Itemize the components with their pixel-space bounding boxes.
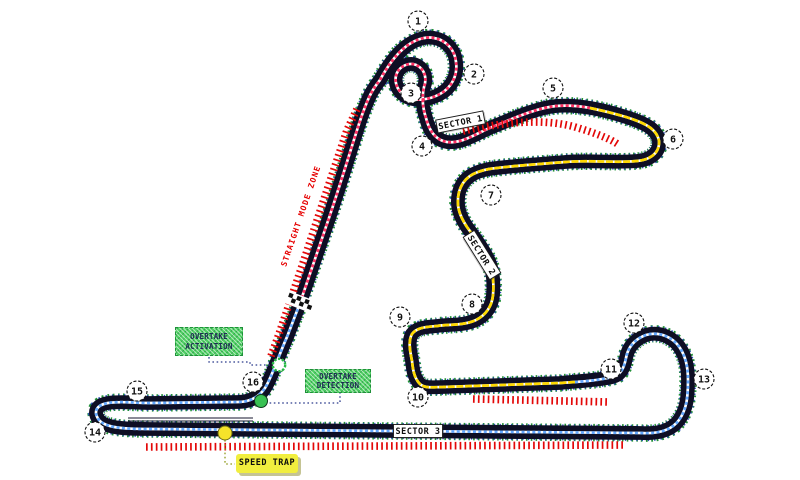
sector2-line-base: [410, 108, 659, 387]
corner-badge-1: 1: [408, 11, 428, 31]
overtake-detection-line2: DETECTION: [317, 381, 359, 391]
svg-text:SECTOR 3: SECTOR 3: [396, 427, 441, 437]
overtake-activation-connector: [209, 357, 272, 365]
overtake-detection-connector: [268, 392, 340, 403]
sector2-line: [410, 108, 659, 387]
corner-number: 15: [131, 387, 143, 398]
corner-number: 9: [397, 313, 403, 324]
corner-number: 7: [488, 191, 494, 202]
corner-number: 3: [408, 89, 414, 100]
track-map-svg: SECTOR 1 SECTOR 2 SECTOR 3 1234567891011…: [0, 0, 800, 480]
corner-number: 5: [550, 84, 556, 95]
corner-badge-12: 12: [624, 313, 644, 333]
corner-badge-7: 7: [481, 185, 501, 205]
corner-number: 4: [419, 142, 425, 153]
speed-trap-marker: [218, 426, 232, 440]
corner-number: 2: [471, 70, 477, 81]
track-outline: [96, 37, 688, 433]
speed-trap-box: SPEED TRAP: [236, 454, 298, 473]
corner-number: 12: [628, 319, 640, 330]
corner-badge-4: 4: [412, 136, 432, 156]
corner-badge-3: 3: [401, 83, 421, 103]
overtake-activation-box: OVERTAKE ACTIVATION: [175, 327, 243, 356]
corner-badge-15: 15: [127, 381, 147, 401]
corner-badge-14: 14: [85, 422, 105, 442]
track-surface: [96, 37, 688, 433]
overtake-detection-line1: OVERTAKE: [319, 372, 357, 382]
corner-badge-10: 10: [408, 387, 428, 407]
corner-badge-11: 11: [601, 359, 621, 379]
sector3-label: SECTOR 3: [394, 425, 445, 440]
corner-number: 1: [415, 17, 421, 28]
overtake-detection-marker: [255, 395, 268, 408]
corner-badge-2: 2: [464, 64, 484, 84]
overtake-detection-box: OVERTAKE DETECTION: [305, 369, 371, 393]
corner-badge-16: 16: [243, 372, 263, 392]
corner-number: 11: [605, 365, 617, 376]
drs-ticks-back-kink: [473, 399, 610, 402]
circuit-map: SECTOR 1 SECTOR 2 SECTOR 3 1234567891011…: [0, 0, 800, 480]
corner-number: 8: [469, 300, 475, 311]
corner-number: 13: [698, 375, 710, 386]
corner-badge-9: 9: [390, 307, 410, 327]
overtake-activation-line1: OVERTAKE: [190, 332, 228, 342]
corner-number: 16: [247, 378, 259, 389]
overtake-activation-line2: ACTIVATION: [185, 342, 232, 352]
corner-number: 14: [89, 428, 101, 439]
overtake-activation-marker: [273, 359, 285, 371]
corner-badge-13: 13: [694, 369, 714, 389]
drs-ticks-main-straight: [271, 109, 357, 356]
drs-ticks-back-straight: [146, 445, 624, 447]
corner-badge-5: 5: [543, 78, 563, 98]
corner-number: 6: [670, 135, 676, 146]
corner-number: 10: [412, 393, 424, 404]
corner-badge-6: 6: [663, 129, 683, 149]
corner-badge-8: 8: [462, 294, 482, 314]
